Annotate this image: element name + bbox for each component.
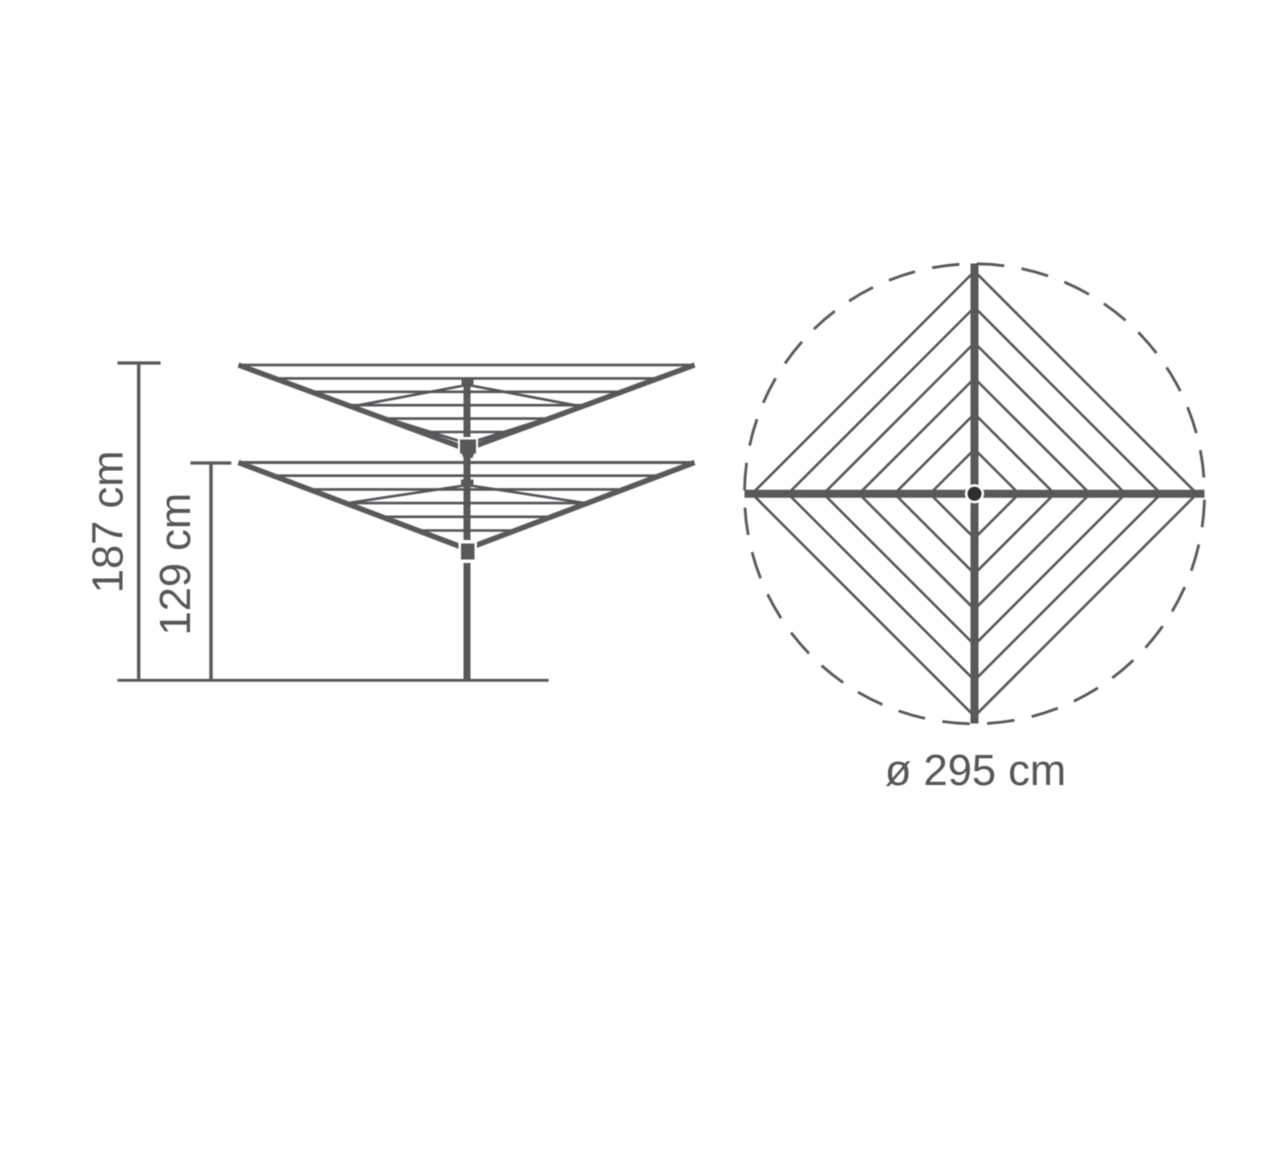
svg-text:187 cm: 187 cm bbox=[85, 451, 133, 594]
svg-text:ø 295 cm: ø 295 cm bbox=[885, 747, 1066, 795]
svg-text:129 cm: 129 cm bbox=[152, 493, 200, 636]
